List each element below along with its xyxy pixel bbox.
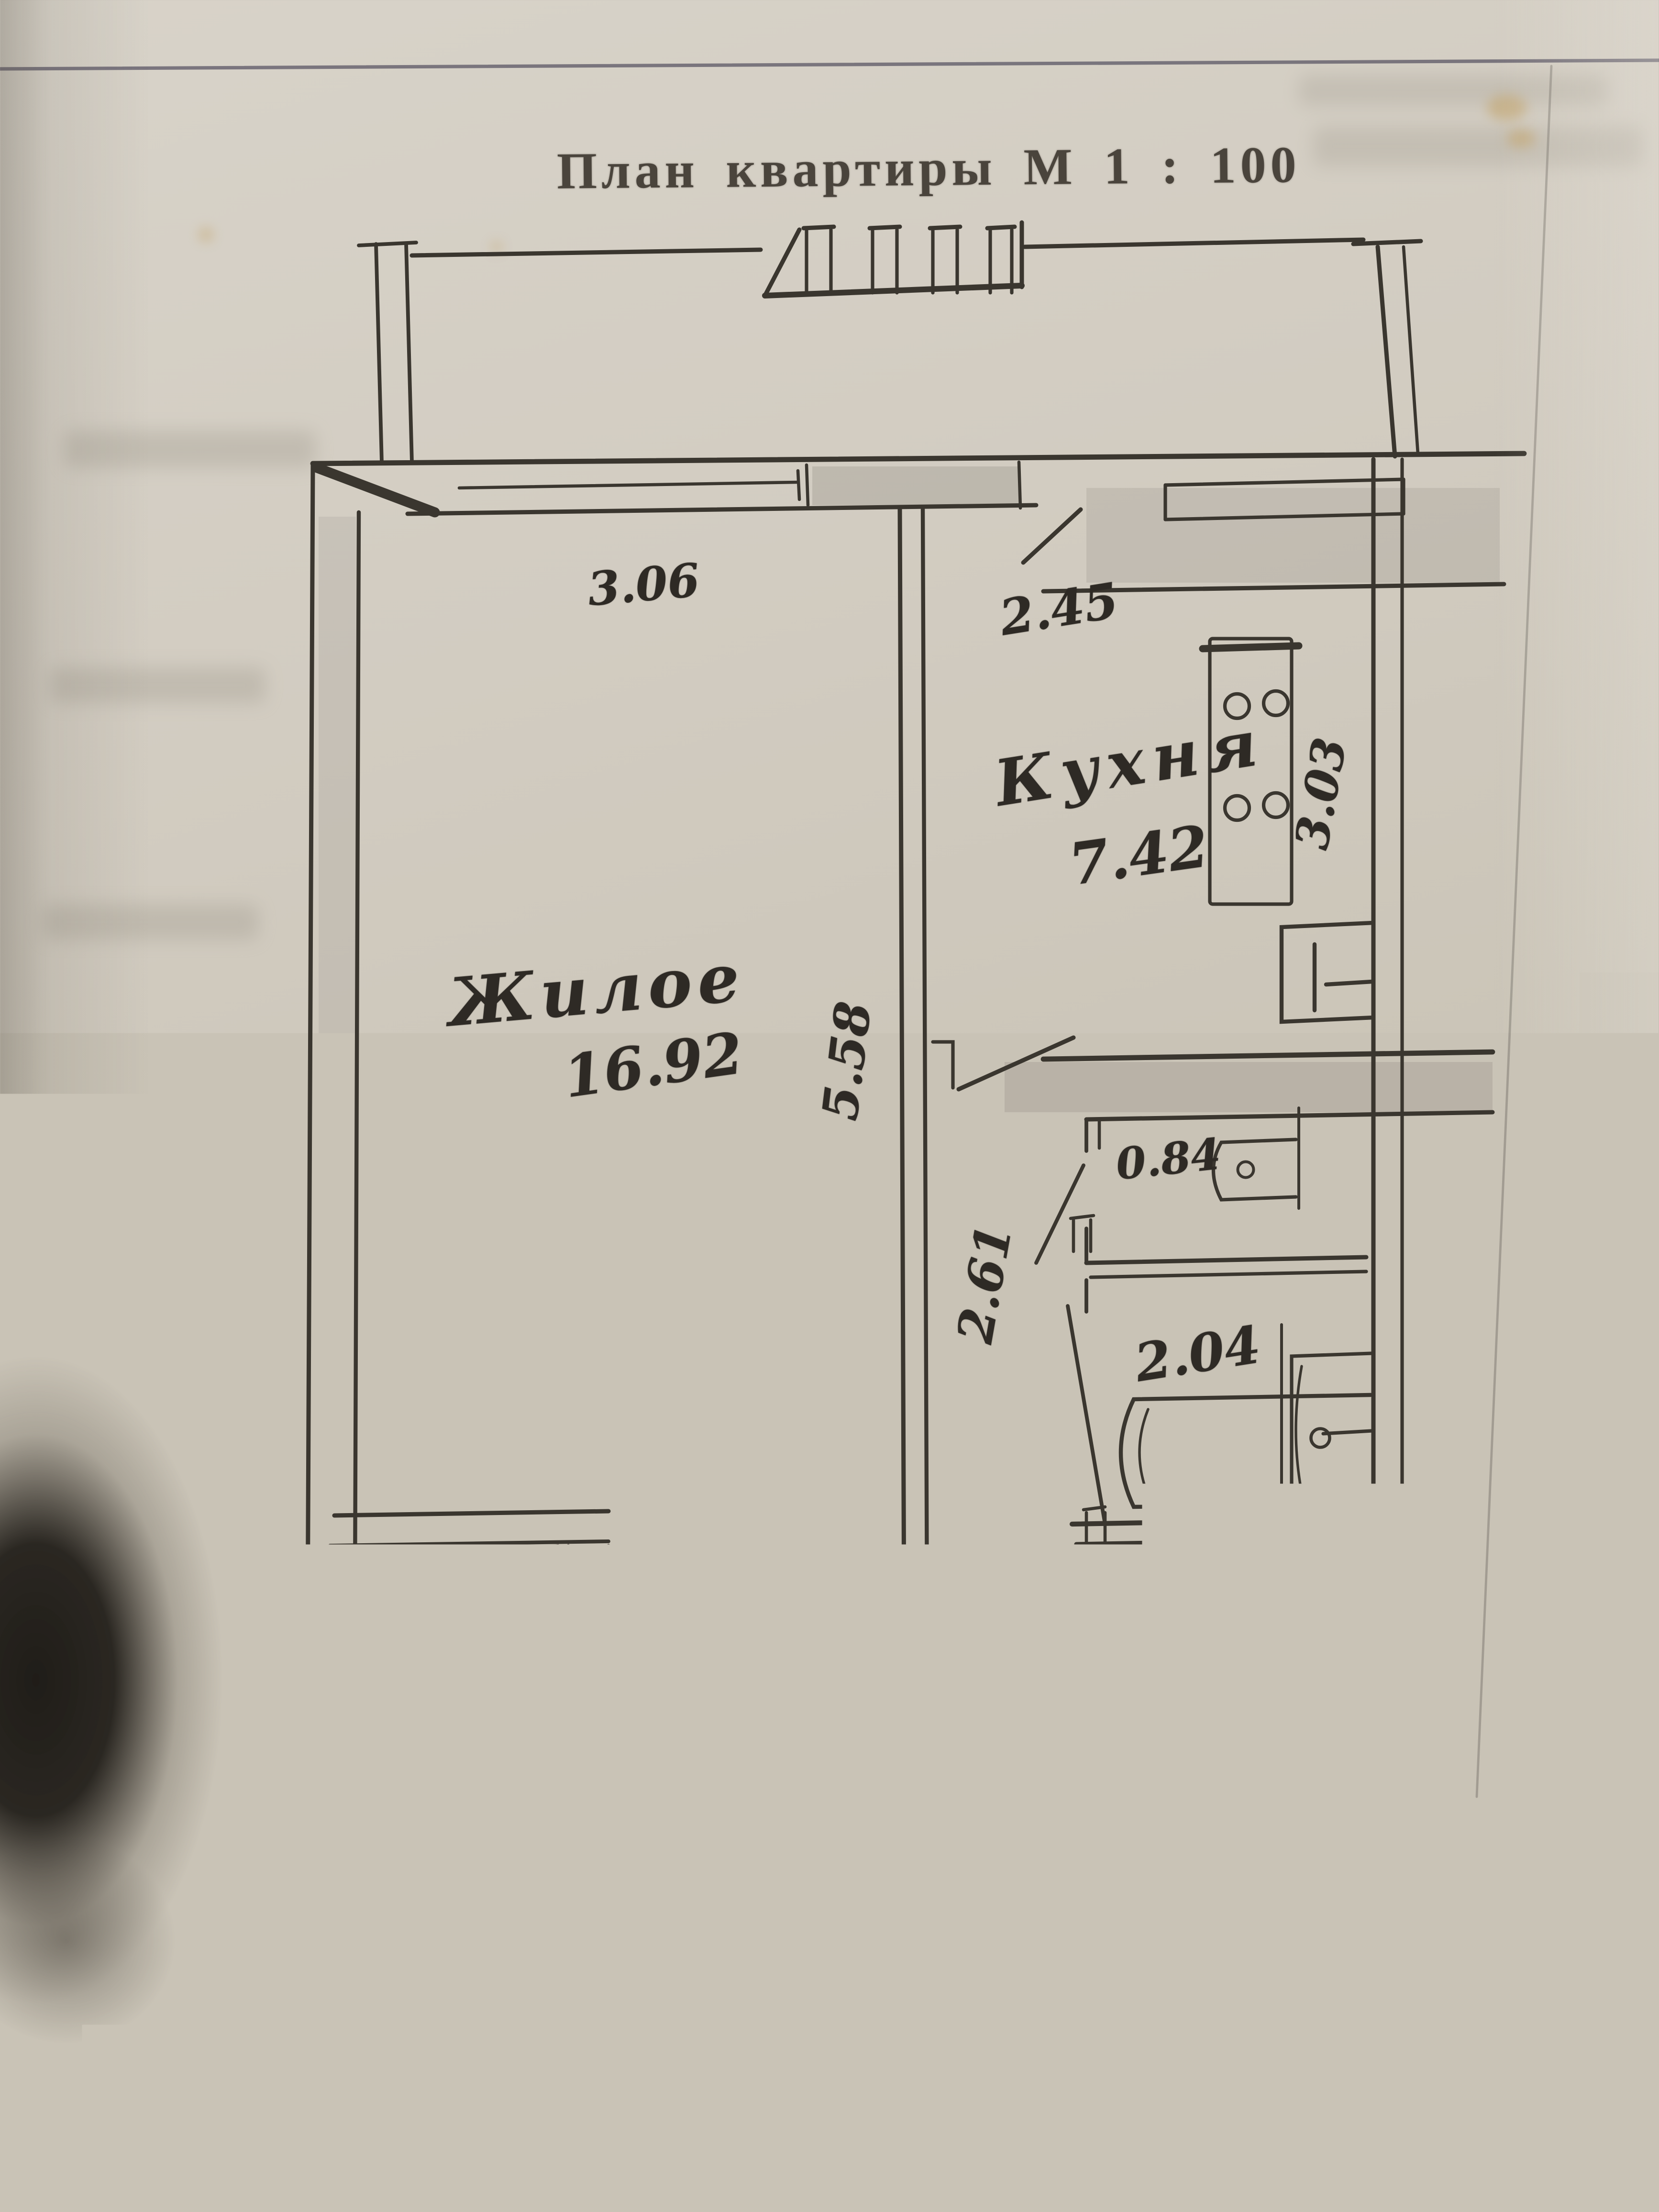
wc-door bbox=[1036, 1165, 1084, 1263]
corridor-area: 8.27 bbox=[1118, 1572, 1284, 1661]
balcony-outline bbox=[359, 240, 1421, 462]
photo-shadow-soft bbox=[0, 1837, 230, 2095]
plan-title: План квартиры М 1 : 100 bbox=[556, 134, 1301, 201]
closet-door bbox=[660, 1645, 675, 1775]
toilet-icon bbox=[1214, 1108, 1299, 1208]
corridor-name: Кор-р bbox=[818, 1589, 1047, 1681]
realt-watermark: Realt bbox=[1243, 2044, 1503, 2161]
washbasin-icon bbox=[1282, 1325, 1372, 1510]
dim-living-window: 3.06 bbox=[586, 553, 702, 617]
balcony-hatch-symbol bbox=[765, 222, 1022, 296]
bathtub-icon bbox=[1121, 1395, 1371, 1507]
kitchen-sink-icon bbox=[1282, 923, 1373, 1022]
floor-plan-photo: План квартиры М 1 : 100 Жилое 16.92 Кухн… bbox=[0, 0, 1659, 2212]
living-room-door bbox=[664, 1577, 798, 1622]
entrance-door bbox=[1368, 1610, 1381, 1722]
bathroom-door bbox=[1068, 1306, 1105, 1524]
